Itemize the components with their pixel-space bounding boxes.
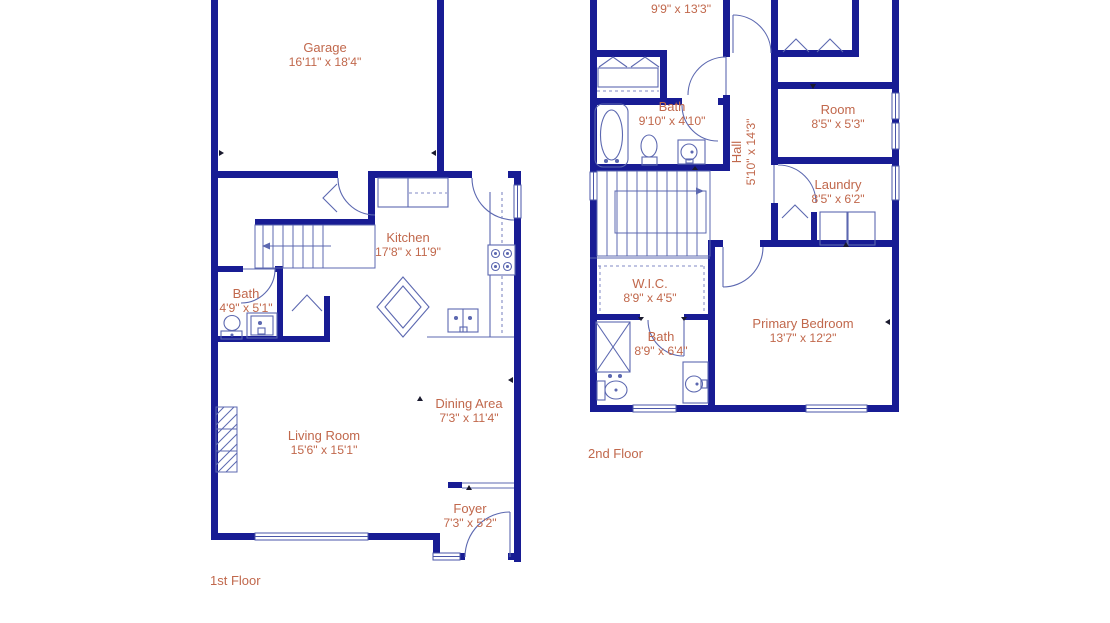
- floor-plan-drawing: [0, 0, 1110, 623]
- second-floor-doors: [648, 15, 816, 356]
- door-primary-bath: [648, 320, 684, 356]
- window: [892, 93, 899, 119]
- first-floor-label: 1st Floor: [210, 573, 261, 588]
- dimension-ticks: [638, 84, 890, 325]
- wic-closet: [590, 258, 710, 312]
- stairs-second-floor: [597, 171, 710, 256]
- window: [806, 405, 867, 412]
- first-floor-doors: [241, 178, 514, 557]
- door-bedroom-top-left: [688, 57, 726, 95]
- window: [433, 553, 460, 560]
- bifold-closet-door: [323, 184, 337, 212]
- door-entry: [465, 512, 510, 557]
- primary-bath-fixtures: [596, 322, 708, 403]
- stove-fixture: [488, 245, 515, 275]
- door-hall-bath: [682, 105, 718, 141]
- toilet-fixture: [597, 381, 627, 400]
- window: [892, 166, 899, 200]
- kitchen-island: [377, 277, 429, 337]
- counter-fridge: [378, 178, 448, 207]
- door-laundry: [774, 165, 816, 203]
- door-bath: [241, 269, 275, 303]
- window: [255, 533, 368, 540]
- fireplace: [216, 407, 237, 472]
- closet-hanging-symbol: [292, 295, 322, 311]
- window: [633, 405, 676, 412]
- floor-plan-canvas: Garage 16'11" x 18'4" Kitchen 17'8" x 11…: [0, 0, 1110, 623]
- shower-fixture: [247, 313, 277, 338]
- window: [892, 123, 899, 149]
- shower-fixture: [596, 322, 630, 378]
- kitchen-fixtures: [377, 178, 515, 337]
- toilet-fixture: [221, 316, 242, 340]
- first-floor-bath-fixtures: [221, 313, 277, 339]
- stairs-first-floor: [255, 225, 375, 268]
- second-floor-plan: [590, 0, 899, 412]
- toilet-fixture: [641, 135, 657, 165]
- first-floor-walls: [211, 0, 521, 562]
- second-floor-walls: [590, 0, 899, 412]
- hall-bath-fixtures: [595, 104, 705, 167]
- sink-fixture: [448, 309, 478, 332]
- window: [514, 185, 521, 218]
- closet-laundry: [782, 205, 808, 218]
- vanity-sink-fixture: [683, 362, 708, 403]
- window: [590, 172, 597, 200]
- first-floor-windows: [255, 185, 521, 560]
- door-hall-top: [733, 15, 771, 53]
- closet-top-left: [597, 57, 659, 91]
- door-primary-bedroom: [723, 247, 763, 287]
- door-kitchen-back: [472, 178, 514, 220]
- second-floor-windows: [590, 93, 899, 412]
- bathtub-fixture: [595, 104, 628, 167]
- first-floor-plan: [211, 0, 521, 562]
- sink-fixture: [678, 140, 705, 164]
- second-floor-label: 2nd Floor: [588, 446, 643, 461]
